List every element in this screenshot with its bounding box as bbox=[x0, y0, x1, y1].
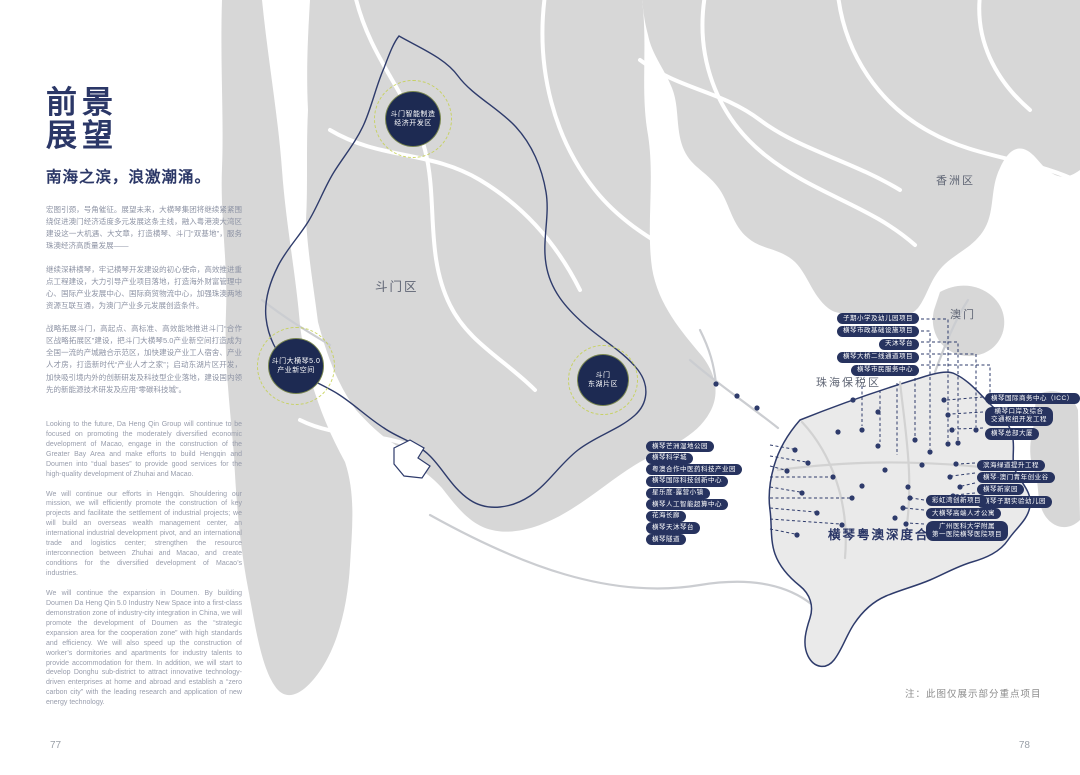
zone-marker-text: 产业新空间 bbox=[277, 366, 315, 375]
en-paragraph: We will continue our efforts in Hengqin.… bbox=[46, 490, 242, 579]
zone-marker-text: 斗门智能制造 bbox=[391, 110, 436, 119]
project-pill: 大横琴高端人才公寓 bbox=[926, 508, 1001, 519]
zh-paragraph: 继续深耕横琴，牢记横琴开发建设的初心使命，高效推进重点工程建设，大力引导产业项目… bbox=[46, 264, 242, 313]
en-paragraph: We will continue the expansion in Doumen… bbox=[46, 589, 242, 708]
project-pill: 横琴国际科技创新中心 bbox=[646, 476, 728, 487]
project-pill: 星乐度·露营小镇 bbox=[646, 488, 710, 499]
region-label-macau: 澳门 bbox=[950, 306, 976, 322]
project-pill: 横琴人工智能超算中心 bbox=[646, 499, 728, 510]
project-pill: 横琴隧道 bbox=[646, 534, 686, 545]
project-pill: 粤澳合作中医药科技产业园 bbox=[646, 464, 742, 475]
page-title: 前景 展望 bbox=[46, 86, 242, 153]
report-page: 前景 展望 南海之滨，浪激潮涌。 宏图引颈，号角催征。展望未来，大横琴集团将继续… bbox=[0, 0, 1080, 775]
region-label-doumen: 斗门区 bbox=[375, 276, 419, 295]
page-number-right: 78 bbox=[1019, 740, 1030, 751]
zone-marker-intelligent-manufacturing: 斗门智能制造 经济开发区 bbox=[374, 80, 452, 158]
project-pill-line: 广州医科大学附属 bbox=[939, 523, 995, 531]
project-pill: 横琴口岸及综合 交通枢纽开发工程 bbox=[985, 407, 1053, 426]
project-pill: 横琴科学城 bbox=[646, 453, 693, 464]
zone-marker-core: 斗门大横琴5.0 产业新空间 bbox=[268, 338, 324, 394]
zh-paragraph: 宏图引颈，号角催征。展望未来，大横琴集团将继续紧紧围绕促进澳门经济适度多元发展这… bbox=[46, 204, 242, 253]
project-group-bottom: 彩虹湾创新项目 大横琴高端人才公寓 广州医科大学附属 第一医院横琴医院项目 bbox=[926, 495, 1008, 541]
project-pill: 彩虹湾创新项目 bbox=[926, 495, 987, 506]
page-title-line2: 展望 bbox=[46, 119, 242, 152]
region-label-xiangzhou: 香洲区 bbox=[936, 172, 975, 188]
project-pill: 横琴·澳门青年创业谷 bbox=[977, 472, 1055, 483]
page-subtitle: 南海之滨，浪激潮涌。 bbox=[46, 165, 242, 187]
project-group-right-upper: 横琴国际商务中心（ICC） 横琴口岸及综合 交通枢纽开发工程 横琴总部大厦 bbox=[985, 393, 1080, 440]
en-paragraph: Looking to the future, Da Heng Qin Group… bbox=[46, 420, 242, 480]
zh-paragraph: 战略拓展斗门，高起点、高标准、高效能地推进斗门“合作区战略拓展区”建设，把斗门大… bbox=[46, 323, 242, 396]
zone-marker-text: 东湖片区 bbox=[588, 380, 618, 389]
project-pill: 横琴大桥二线通道项目 bbox=[837, 352, 919, 363]
zone-marker-core: 斗门智能制造 经济开发区 bbox=[385, 91, 441, 147]
project-pill: 天沐琴台 bbox=[879, 339, 919, 350]
chinese-text-block: 宏图引颈，号角催征。展望未来，大横琴集团将继续紧紧围绕促进澳门经济适度多元发展这… bbox=[46, 204, 242, 396]
map-note: 注：此图仅展示部分重点项目 bbox=[905, 686, 1042, 700]
project-pill: 横琴新家园 bbox=[977, 484, 1024, 495]
project-pill: 横琴芒洲湿地公园 bbox=[646, 441, 714, 452]
page-title-line1: 前景 bbox=[46, 86, 242, 119]
project-pill: 横琴总部大厦 bbox=[985, 428, 1039, 439]
intro-column: 前景 展望 南海之滨，浪激潮涌。 宏图引颈，号角催征。展望未来，大横琴集团将继续… bbox=[46, 86, 242, 718]
project-pill-line: 交通枢纽开发工程 bbox=[991, 416, 1047, 424]
project-pill: 广州医科大学附属 第一医院横琴医院项目 bbox=[926, 521, 1008, 540]
project-group-left: 横琴芒洲湿地公园 横琴科学城 粤澳合作中医药科技产业园 横琴国际科技创新中心 星… bbox=[646, 441, 742, 545]
zone-marker-text: 斗门大横琴5.0 bbox=[272, 357, 321, 366]
english-text-block: Looking to the future, Da Heng Qin Group… bbox=[46, 420, 242, 708]
zone-marker-core: 斗门 东湖片区 bbox=[577, 354, 629, 406]
project-pill: 横琴国际商务中心（ICC） bbox=[985, 393, 1080, 404]
project-pill-line: 第一医院横琴医院项目 bbox=[932, 531, 1002, 539]
zone-marker-text: 斗门 bbox=[596, 371, 611, 380]
project-pill: 横琴市政基础设施项目 bbox=[837, 326, 919, 337]
project-group-top: 子期小学及幼儿园项目 横琴市政基础设施项目 天沐琴台 横琴大桥二线通道项目 横琴… bbox=[837, 313, 919, 376]
page-number-left: 77 bbox=[50, 740, 61, 751]
project-pill: 子期小学及幼儿园项目 bbox=[837, 313, 919, 324]
project-pill: 横琴天沐琴台 bbox=[646, 522, 700, 533]
zone-marker-text: 经济开发区 bbox=[394, 119, 432, 128]
zone-marker-dahengqin-5-0: 斗门大横琴5.0 产业新空间 bbox=[257, 327, 335, 405]
project-pill: 横琴市民服务中心 bbox=[851, 365, 919, 376]
project-pill: 滨海绿道提升工程 bbox=[977, 460, 1045, 471]
region-label-zhuhai-ftz: 珠海保税区 bbox=[816, 374, 881, 390]
zone-marker-donghu: 斗门 东湖片区 bbox=[568, 345, 638, 415]
project-pill: 花海长廊 bbox=[646, 511, 686, 522]
